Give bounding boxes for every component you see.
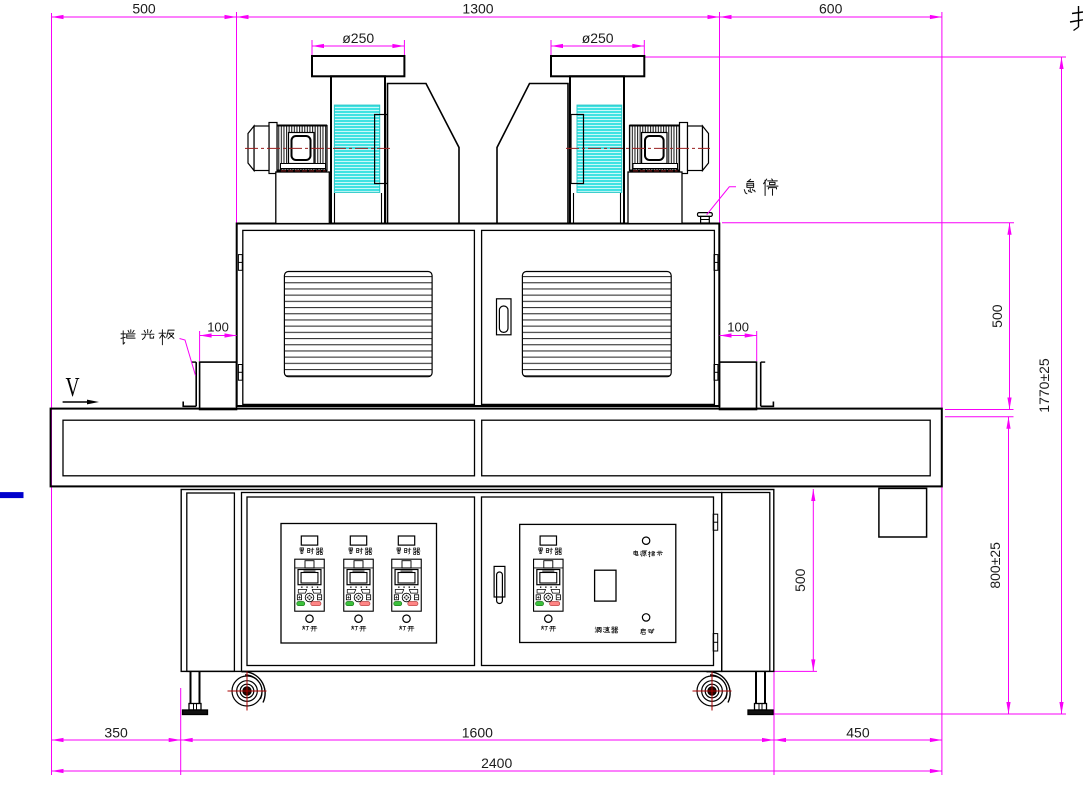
svg-text:450: 450 [846,725,870,741]
svg-text:1770±25: 1770±25 [1036,358,1052,413]
svg-text:ø250: ø250 [582,30,614,46]
svg-text:600: 600 [819,1,843,17]
svg-text:100: 100 [207,320,229,335]
svg-text:V: V [66,373,80,403]
svg-text:100: 100 [727,320,749,335]
svg-text:500: 500 [792,568,808,592]
svg-text:1600: 1600 [462,725,493,741]
svg-text:2400: 2400 [481,755,512,771]
svg-text:ø250: ø250 [342,30,374,46]
svg-text:1300: 1300 [462,1,493,17]
svg-text:800±25: 800±25 [987,542,1003,589]
svg-text:500: 500 [989,304,1005,328]
svg-text:350: 350 [104,725,128,741]
svg-text:500: 500 [132,1,156,17]
